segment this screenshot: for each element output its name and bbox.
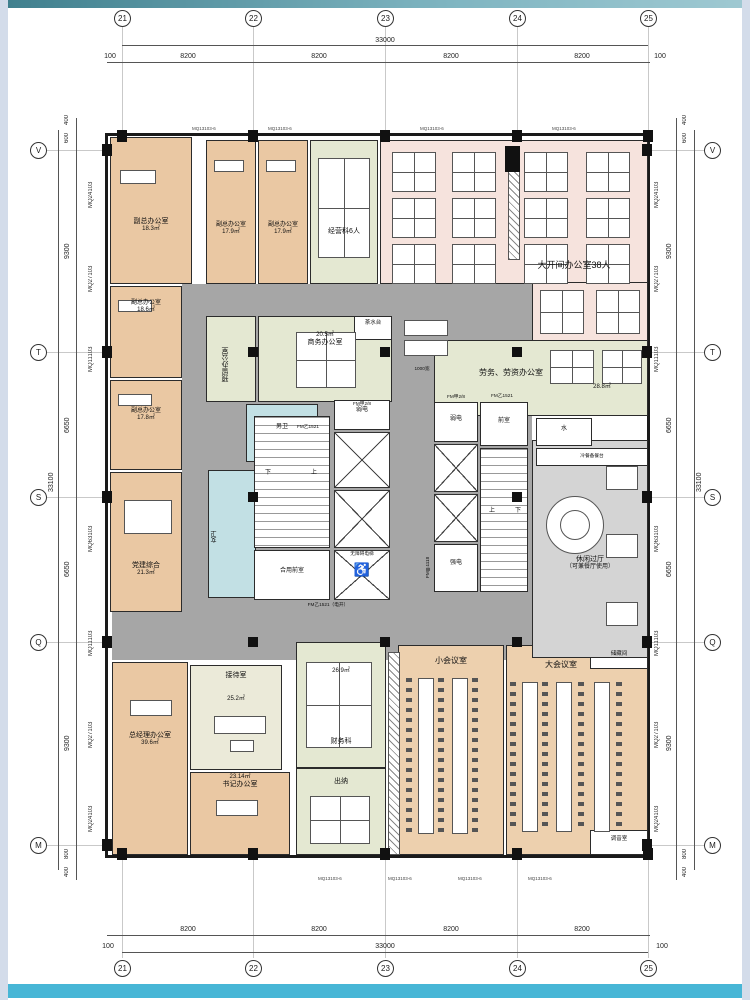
room-dangjian	[110, 472, 182, 612]
grid-bubble-T-right: T	[704, 344, 721, 361]
wall-code: MQ11103	[654, 332, 660, 372]
wheelchair-icon: ♿	[352, 562, 372, 578]
room-area-finance: 26.9㎡	[296, 668, 386, 675]
desk-cluster	[404, 320, 448, 336]
room-label-lounge: 休闲过厅 （可兼餐厅使用）	[532, 556, 648, 572]
grid-bubble-21-bot: 21	[114, 960, 131, 977]
column	[642, 636, 652, 648]
grid-bubble-M-right: M	[704, 837, 721, 854]
dim-right-seg4: 9300	[666, 726, 673, 760]
wall-code: MQ27103	[654, 252, 660, 292]
desk-cluster	[602, 350, 642, 384]
room-gm-office	[112, 662, 188, 855]
dim-top-seg1: 8200	[168, 53, 208, 60]
grid-bubble-25-bot: 25	[640, 960, 657, 977]
room-note: （可兼餐厅使用）	[532, 564, 648, 571]
room-label-reception: 接待室	[190, 672, 282, 680]
door-code: FM乙1521	[286, 424, 330, 430]
meeting-table	[418, 678, 434, 834]
dim-left-bot-b: 400	[64, 864, 70, 880]
dim-left-top-a: 400	[64, 112, 70, 128]
wall-code: MQ24103	[654, 168, 660, 208]
column	[102, 491, 112, 503]
stair-down: 下	[262, 470, 274, 477]
stair-east	[480, 448, 528, 592]
grid-label: T	[710, 348, 715, 357]
chair-row	[472, 678, 478, 834]
column	[512, 130, 522, 142]
grid-label: 22	[249, 964, 258, 973]
top-edge-band	[0, 0, 750, 8]
core-label-shared-ante: 合用前室	[254, 568, 330, 575]
dim-left-top-b: 600	[64, 130, 70, 146]
wall-code: MQ63103	[654, 512, 660, 552]
room-label-vice-c: 副总办公室 17.9㎡	[258, 222, 308, 236]
desk-cluster	[392, 198, 436, 238]
core-label-ante-east: 前室	[480, 418, 528, 425]
core-label-strong-east: 强电	[434, 560, 478, 567]
wall-code: MQ13103-6	[552, 126, 576, 131]
grid-bubble-23-bot: 23	[377, 960, 394, 977]
dim-line-bottom-seg	[107, 935, 650, 936]
column	[642, 144, 652, 156]
grid-label: S	[710, 493, 715, 502]
desk-cluster	[118, 394, 152, 406]
room-name: 商务办公室	[258, 339, 392, 347]
room-area: 17.8㎡	[110, 415, 182, 422]
wall-code: MQ11103	[88, 616, 94, 656]
grid-bubble-23-top: 23	[377, 10, 394, 27]
room-area: 21.3㎡	[110, 570, 182, 577]
chair-row	[406, 678, 412, 834]
desk-cluster	[230, 740, 254, 752]
room-label-buffet: 冷餐备餐台	[536, 453, 648, 459]
partition-hatch-meeting	[388, 652, 400, 855]
wall-code: MQ27103	[654, 708, 660, 748]
room-label-open-office: 大开间办公室38人	[500, 260, 648, 271]
room-label-business: 20.5㎡ 商务办公室	[258, 332, 392, 348]
column	[642, 346, 652, 358]
wall-code: MQ13103-6	[268, 126, 292, 131]
column	[643, 130, 653, 142]
wall-code: MQ27103	[88, 252, 94, 292]
room-small-meeting	[398, 645, 504, 855]
room-label-tea: 茶水台	[354, 320, 392, 327]
grid-label: 21	[118, 964, 127, 973]
desk-cluster	[452, 244, 496, 284]
room-label-water: 水	[536, 426, 592, 433]
grid-bubble-Q-left: Q	[30, 634, 47, 651]
grid-label: 21	[118, 14, 127, 23]
room-area: 17.9㎡	[206, 229, 256, 236]
column	[248, 637, 258, 647]
dim-right-top-b: 600	[682, 130, 688, 146]
column	[102, 346, 112, 358]
dim-top-total: 33000	[365, 37, 405, 44]
grid-label: 25	[644, 964, 653, 973]
dim-top-edge-l: 100	[100, 53, 120, 60]
room-label-sound: 调音室	[590, 836, 648, 843]
column	[102, 144, 112, 156]
desk-cluster	[130, 700, 172, 716]
grid-bubble-V-left: V	[30, 142, 47, 159]
desk-cluster	[392, 152, 436, 192]
grid-label: 23	[381, 964, 390, 973]
dim-right-seg1: 9300	[666, 234, 673, 268]
grid-bubble-S-right: S	[704, 489, 721, 506]
width-note: 1000宽	[406, 366, 438, 372]
wall-code: MQ13103-6	[420, 126, 444, 131]
dim-top-seg2: 8200	[299, 53, 339, 60]
dim-left-seg2: 6650	[64, 408, 71, 442]
stair-up: 上	[486, 508, 498, 515]
column	[642, 839, 652, 851]
meeting-table	[522, 682, 538, 832]
room-label-jingying: 经营科6人	[310, 228, 378, 236]
dim-top-seg3: 8200	[431, 53, 471, 60]
desk-cluster	[586, 152, 630, 192]
meeting-table	[452, 678, 468, 834]
grid-bubble-24-bot: 24	[509, 960, 526, 977]
desk-cluster	[606, 534, 638, 558]
door-code: FM乙1521	[478, 393, 526, 399]
desk-cluster	[392, 244, 436, 284]
desk-cluster	[452, 198, 496, 238]
desk-cluster	[214, 160, 244, 172]
desk-cluster	[540, 290, 584, 334]
room-label-labor: 劳务、劳资办公室	[436, 368, 586, 378]
left-edge-band	[0, 0, 8, 1000]
dim-right-total: 33100	[696, 462, 703, 502]
column	[512, 492, 522, 502]
column	[248, 347, 258, 357]
grid-bubble-22-top: 22	[245, 10, 262, 27]
door-code: FM甲1118	[425, 548, 431, 586]
desk-cluster	[266, 160, 296, 172]
dim-left-seg4: 9300	[64, 726, 71, 760]
wall-code: MQ13103-6	[458, 876, 482, 881]
room-label-gm: 总经理办公室 39.6㎡	[112, 732, 188, 748]
wall-code: MQ24103	[88, 168, 94, 208]
room-label-small-meeting: 小会议室	[398, 656, 504, 666]
grid-bubble-V-right: V	[704, 142, 721, 159]
column	[512, 848, 522, 860]
chair-row	[510, 682, 516, 832]
grid-label: S	[36, 493, 41, 502]
grid-bubble-21-top: 21	[114, 10, 131, 27]
desk-cluster	[524, 152, 568, 192]
column	[102, 839, 112, 851]
door-code: FM甲2/8	[434, 394, 478, 400]
grid-label: 22	[249, 14, 258, 23]
dim-line-bottom-total	[122, 952, 648, 953]
grid-label: 24	[513, 964, 522, 973]
column	[248, 492, 258, 502]
bottom-edge-band	[0, 984, 750, 998]
wall-code: MQ63103	[88, 512, 94, 552]
dim-bot-edge-l: 100	[98, 943, 118, 950]
room-label-vice-a: 副总办公室 18.3㎡	[110, 218, 192, 234]
desk-cluster	[310, 796, 370, 844]
room-area-labor: 28.8㎡	[580, 384, 624, 391]
grid-label: 25	[644, 14, 653, 23]
dim-right-bot-b: 400	[682, 864, 688, 880]
desk-cluster	[596, 290, 640, 334]
column	[102, 636, 112, 648]
core-label-weak-east: 弱电	[434, 416, 478, 423]
column	[512, 347, 522, 357]
room-area: 18.6㎡	[110, 307, 182, 314]
elevator-shaft	[434, 444, 478, 492]
room-label-vice-d: 副总办公室 18.6㎡	[110, 300, 182, 314]
dim-left-seg3: 6650	[64, 552, 71, 586]
column	[380, 637, 390, 647]
round-table-center	[560, 510, 590, 540]
column	[380, 347, 390, 357]
dim-bot-total: 33000	[365, 943, 405, 950]
room-name: 书记办公室	[190, 781, 290, 789]
grid-label: V	[710, 146, 715, 155]
wall-code: MQ27103	[88, 708, 94, 748]
chair-row	[542, 682, 548, 832]
grid-bubble-T-left: T	[30, 344, 47, 361]
dim-bot-edge-r: 100	[652, 943, 672, 950]
core-label-accessible-elev: 无障碍电梯	[334, 551, 390, 557]
dim-left-total: 33100	[48, 462, 55, 502]
grid-label: Q	[709, 638, 715, 647]
desk-cluster	[524, 198, 568, 238]
grid-bubble-M-left: M	[30, 837, 47, 854]
room-label-cashier: 出纳	[296, 778, 386, 786]
room-area: 18.3㎡	[110, 226, 192, 233]
room-name: 弱电	[334, 407, 390, 414]
room-label-dangjian: 党建综合 21.3㎡	[110, 562, 182, 578]
desk-cluster	[586, 198, 630, 238]
dim-right-seg2: 6650	[666, 408, 673, 442]
desk-cluster	[452, 152, 496, 192]
room-strong-current-east	[434, 544, 478, 592]
column	[512, 637, 522, 647]
room-area-reception: 25.2㎡	[190, 696, 282, 703]
room-label-vice-e: 副总办公室 17.8㎡	[110, 408, 182, 422]
dim-line-right-total	[694, 130, 695, 870]
grid-bubble-22-bot: 22	[245, 960, 262, 977]
dim-right-top-a: 400	[682, 112, 688, 128]
desk-cluster	[120, 170, 156, 184]
wall-code: MQ24103	[654, 792, 660, 832]
grid-bubble-24-top: 24	[509, 10, 526, 27]
dim-line-left-seg	[76, 118, 77, 880]
chair-row	[438, 678, 444, 834]
elevator-shaft	[434, 494, 478, 542]
room-label-storage: 储藏间	[590, 651, 648, 658]
wall-code: MQ13103-6	[528, 876, 552, 881]
grid-bubble-S-left: S	[30, 489, 47, 506]
grid-bubble-25-top: 25	[640, 10, 657, 27]
dim-bot-seg1: 8200	[168, 926, 208, 933]
dim-top-seg4: 8200	[562, 53, 602, 60]
room-reserved	[206, 316, 256, 402]
column	[380, 130, 390, 142]
elevator-shaft	[334, 432, 390, 488]
room-vice-office-a	[110, 137, 192, 284]
grid-label: M	[35, 841, 42, 850]
dim-left-bot-a: 800	[64, 846, 70, 862]
entry-shaft-block	[505, 146, 520, 172]
column	[380, 848, 390, 860]
dim-right-seg3: 6650	[666, 552, 673, 586]
desk-cluster	[124, 500, 172, 534]
column	[117, 130, 127, 142]
dim-bot-seg4: 8200	[562, 926, 602, 933]
desk-cluster	[404, 340, 448, 356]
chair-row	[578, 682, 584, 832]
grid-label: T	[36, 348, 41, 357]
room-area: 39.6㎡	[112, 740, 188, 747]
room-label-reserved: 预留办公室	[222, 328, 230, 402]
wall-code: MQ11103	[654, 616, 660, 656]
dim-top-edge-r: 100	[650, 53, 670, 60]
room-area: 17.9㎡	[258, 229, 308, 236]
wall-code: MQ13103-6	[318, 876, 342, 881]
stair-up: 上	[308, 470, 320, 477]
chair-row	[616, 682, 622, 832]
wall-code: MQ24103	[88, 792, 94, 832]
grid-label: M	[709, 841, 716, 850]
desk-cluster	[318, 158, 370, 258]
stair-west	[254, 416, 330, 548]
wall-code: MQ11103	[88, 332, 94, 372]
desk-cluster	[606, 466, 638, 490]
stair-down: 下	[512, 508, 524, 515]
desk-cluster	[606, 602, 638, 626]
column	[642, 491, 652, 503]
dim-left-seg1: 9300	[64, 234, 71, 268]
column	[248, 130, 258, 142]
column	[117, 848, 127, 860]
core-label-weak-west: FM甲2/8 弱电	[334, 401, 390, 414]
dim-right-bot-a: 800	[682, 846, 688, 862]
desk-cluster	[550, 350, 594, 384]
floor-plan-page: { "grid": {"cols": ["21","22","23","24",…	[0, 0, 750, 1000]
grid-label: 24	[513, 14, 522, 23]
dim-line-top-seg	[107, 62, 650, 63]
door-code: FM乙1521（电开）	[288, 602, 368, 608]
room-label-vice-b: 副总办公室 17.9㎡	[206, 222, 256, 236]
dim-line-left-total	[58, 130, 59, 870]
dim-line-top-total	[122, 45, 648, 46]
grid-bubble-Q-right: Q	[704, 634, 721, 651]
dim-bot-seg3: 8200	[431, 926, 471, 933]
meeting-table	[594, 682, 610, 832]
right-edge-band	[742, 0, 750, 1000]
room-label-large-meeting: 大会议室	[506, 660, 616, 670]
dim-bot-seg2: 8200	[299, 926, 339, 933]
corridor-left	[182, 284, 208, 612]
meeting-table	[556, 682, 572, 832]
wall-code: MQ13103-6	[388, 876, 412, 881]
desk-cluster	[216, 800, 258, 816]
room-label-secretary: 23.14㎡ 书记办公室	[190, 774, 290, 790]
grid-label: 23	[381, 14, 390, 23]
desk-cluster	[214, 716, 266, 734]
grid-label: V	[36, 146, 41, 155]
wall-code: MQ13103-6	[192, 126, 216, 131]
dim-line-right-seg	[676, 118, 677, 880]
column	[248, 848, 258, 860]
room-label-toilet-women: 女卫	[212, 522, 219, 552]
grid-label: Q	[35, 638, 41, 647]
room-label-finance: 财务科	[296, 738, 386, 746]
elevator-shaft	[334, 490, 390, 548]
